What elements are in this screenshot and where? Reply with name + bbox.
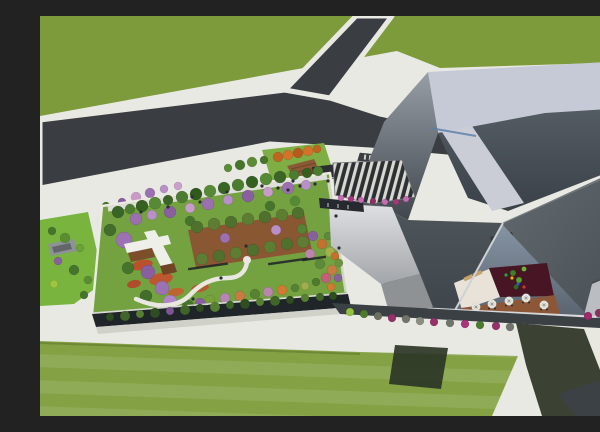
tree: [271, 225, 281, 235]
tree: [382, 199, 388, 205]
person: [522, 285, 525, 288]
tree: [506, 323, 514, 331]
tree: [54, 257, 62, 265]
tree: [136, 310, 144, 318]
tree: [281, 238, 293, 250]
parasol-icon: [505, 297, 513, 307]
person: [191, 297, 194, 300]
tree: [301, 294, 309, 302]
tree: [348, 196, 354, 202]
tree: [136, 200, 148, 212]
tree: [273, 152, 283, 162]
tree: [104, 224, 116, 236]
tree: [358, 197, 364, 203]
person: [504, 273, 507, 276]
tree: [220, 233, 230, 243]
tree: [277, 285, 287, 295]
tree: [240, 299, 250, 309]
tree: [297, 224, 307, 234]
person: [286, 188, 289, 191]
tree: [185, 203, 195, 213]
tree: [270, 296, 280, 306]
person: [510, 276, 513, 279]
tree: [338, 195, 344, 201]
tree: [283, 150, 293, 160]
architectural-render: Aerial architectural rendering: [40, 16, 600, 416]
tree: [48, 227, 56, 235]
tree: [303, 146, 313, 156]
parasol-icon: [522, 294, 530, 304]
tree: [259, 211, 271, 223]
tree: [516, 277, 522, 283]
tree: [374, 312, 382, 320]
tree: [312, 278, 320, 286]
tree: [263, 287, 273, 297]
tree: [286, 296, 294, 304]
tree: [446, 319, 454, 327]
tree: [264, 241, 276, 253]
tree: [308, 231, 318, 241]
tree: [291, 284, 299, 292]
tree: [230, 247, 242, 259]
parasol-icon: [540, 301, 548, 311]
path-plaza-node: [243, 256, 251, 264]
tree: [50, 280, 58, 288]
tree: [225, 216, 237, 228]
tree: [122, 262, 134, 274]
tree: [416, 317, 424, 325]
tree: [60, 233, 70, 243]
tree: [202, 198, 214, 210]
tree: [256, 298, 264, 306]
tree: [276, 209, 288, 221]
person: [337, 246, 340, 249]
building-shadow: [389, 345, 448, 389]
tree: [232, 179, 244, 191]
tree: [224, 164, 232, 172]
person: [225, 190, 228, 193]
tree: [274, 171, 286, 183]
tree: [492, 322, 500, 330]
tree: [106, 313, 114, 321]
tree: [247, 244, 259, 256]
person: [198, 200, 201, 203]
tree: [242, 190, 254, 202]
tree: [260, 156, 268, 164]
tree: [388, 314, 396, 322]
tree: [130, 213, 142, 225]
tree: [213, 250, 225, 262]
tree: [120, 311, 130, 321]
tree: [430, 318, 438, 326]
person: [291, 179, 294, 182]
tree: [226, 301, 234, 309]
tree: [282, 182, 294, 194]
tree: [223, 195, 233, 205]
tree: [196, 253, 208, 265]
tree: [166, 307, 174, 315]
tree: [584, 312, 592, 320]
tree: [247, 157, 257, 167]
tree: [141, 265, 155, 279]
person: [326, 179, 329, 182]
tree: [316, 293, 324, 301]
person: [166, 205, 169, 208]
render-canvas: [40, 16, 600, 416]
tree: [370, 198, 376, 204]
tree: [461, 320, 469, 328]
tree: [69, 265, 79, 275]
tree: [174, 182, 182, 190]
tree: [147, 210, 157, 220]
tree: [403, 196, 409, 202]
tree: [297, 236, 309, 248]
tree: [402, 315, 410, 323]
tree: [329, 292, 337, 300]
tree: [301, 180, 311, 190]
entrance-canopy-louvers: [333, 160, 415, 204]
tree: [191, 221, 203, 233]
tree: [292, 207, 304, 219]
tree: [260, 173, 272, 185]
tree: [155, 281, 169, 295]
tree: [164, 206, 176, 218]
person: [139, 210, 142, 213]
tree: [313, 145, 321, 153]
tree: [149, 197, 161, 209]
tree: [112, 206, 124, 218]
tree: [242, 213, 254, 225]
person: [313, 182, 316, 185]
tree: [522, 267, 527, 272]
person: [260, 184, 263, 187]
tree: [250, 289, 260, 299]
person: [276, 186, 279, 189]
tree: [246, 176, 258, 188]
tree: [393, 199, 399, 205]
tree: [301, 282, 309, 290]
tree: [510, 270, 516, 276]
tree: [331, 252, 339, 260]
tree: [208, 218, 220, 230]
tree: [335, 259, 343, 267]
person: [298, 184, 301, 187]
tree: [290, 196, 300, 206]
tree: [80, 291, 88, 299]
person: [219, 276, 222, 279]
tree: [196, 304, 204, 312]
tree: [150, 308, 160, 318]
parasol-icon: [488, 300, 496, 310]
tree: [315, 259, 325, 269]
tree: [204, 185, 216, 197]
tree: [334, 274, 342, 282]
tree: [210, 302, 220, 312]
person: [516, 282, 519, 285]
tree: [265, 201, 275, 211]
tree: [145, 188, 155, 198]
tree: [327, 283, 335, 291]
tree: [289, 170, 299, 180]
tree: [476, 321, 484, 329]
tree: [76, 244, 84, 252]
tree: [346, 308, 354, 316]
person: [334, 214, 337, 217]
tree: [235, 160, 245, 170]
person: [190, 195, 193, 198]
tree: [180, 305, 190, 315]
tree: [360, 310, 368, 318]
tree: [302, 168, 312, 178]
tree: [160, 185, 168, 193]
tree: [293, 148, 303, 158]
tree: [125, 204, 135, 214]
person: [244, 244, 247, 247]
tree: [163, 195, 173, 205]
tree: [176, 191, 188, 203]
tree: [321, 273, 331, 283]
tree: [84, 276, 92, 284]
tree: [313, 166, 323, 176]
tree: [317, 239, 327, 249]
tree: [263, 187, 273, 197]
